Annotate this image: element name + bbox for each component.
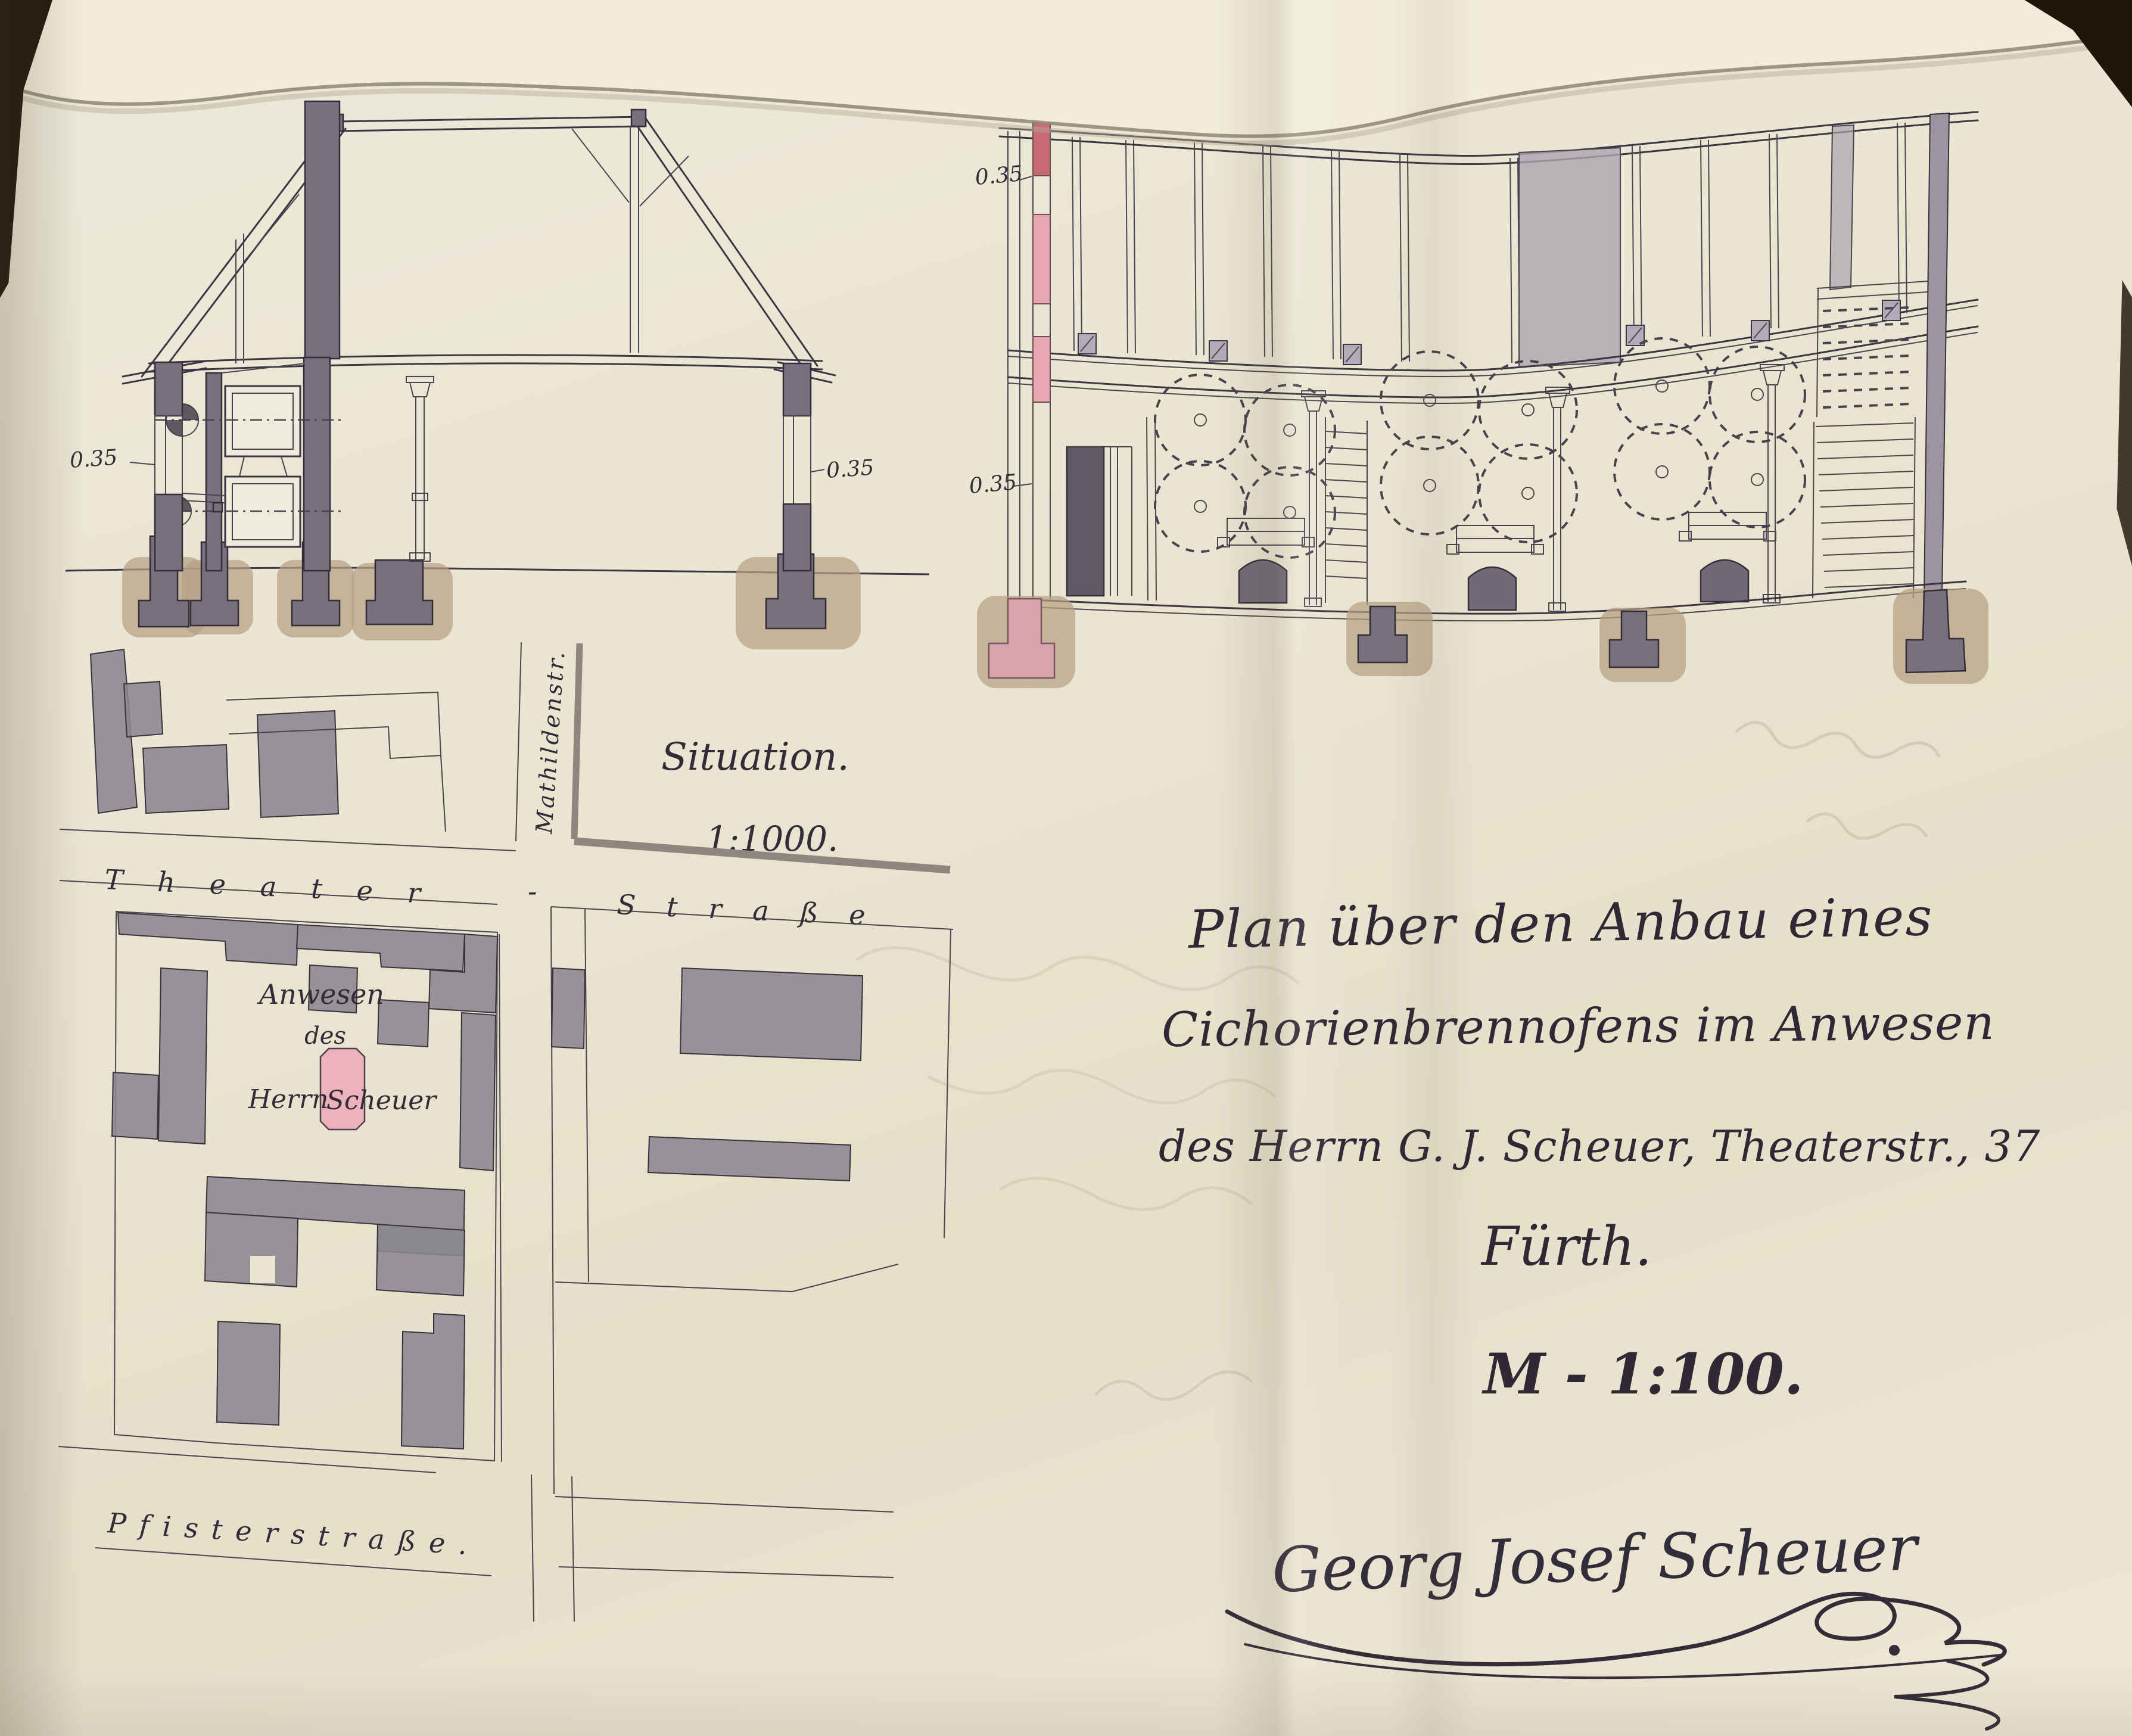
roasting-oven-section — [155, 357, 346, 571]
property-label-3: Herrn — [248, 1084, 329, 1115]
street-pfister-label: Pfisterstraße. — [106, 1507, 481, 1561]
photo-corner-dark-tl — [0, 0, 66, 298]
door-opening — [1067, 447, 1132, 596]
fire-arches — [1239, 560, 1748, 610]
page-shading-bottom — [0, 1665, 2132, 1736]
dim-0-35-right: 0.35 — [826, 455, 875, 483]
site-plan-title: Situation. — [661, 735, 849, 779]
timber-studs — [1072, 123, 1907, 363]
eave-lines — [1000, 112, 1978, 164]
new-wall-pink-segment — [1033, 337, 1050, 402]
street-theater-sep: - — [528, 875, 537, 907]
street-theater-label-1: Theater — [104, 863, 456, 911]
street-mathilden: Mathildenstr. — [516, 642, 580, 841]
dim-0-35-upper: 0.35 — [974, 161, 1023, 190]
chimney-band-narrow — [1830, 125, 1854, 290]
lane-lines — [499, 907, 554, 1494]
plan-scale: M - 1:100. — [1483, 1342, 1804, 1407]
property-label-1: Anwesen — [257, 978, 384, 1010]
plan-title-line-1: Plan über den Anbau eines — [1188, 886, 1934, 960]
chimney — [305, 101, 340, 359]
photo-edge-dark-right — [2114, 280, 2132, 566]
bleed-through-marks — [1704, 709, 1978, 911]
drum-group-b — [1381, 351, 1577, 542]
drum-group-c — [1614, 338, 1805, 527]
scanned-plan-page: 0.35 0.35 — [0, 0, 2132, 1736]
dim-0-35-lower: 0.35 — [968, 470, 1017, 499]
property-label-2: des — [304, 1022, 346, 1050]
left-wall-new-masonry: 0.35 0.35 — [968, 112, 1050, 599]
right-wall — [783, 363, 811, 571]
bleed-through-marks — [1078, 1346, 1269, 1430]
longitudinal-section-drawing: 0.35 0.35 — [953, 36, 2037, 703]
right-end-wall — [1924, 113, 1949, 598]
staircase — [1813, 417, 1915, 598]
plan-title-line-2: Cichorienbrennofens im Anwesen — [1162, 995, 1996, 1057]
floor-beam — [1008, 300, 1978, 403]
plan-title-city: Fürth. — [1471, 1215, 1662, 1278]
new-wall-pink-segment — [1033, 214, 1050, 304]
site-plan: Situation. 1:1000. Mathildenstr. Theater… — [48, 631, 971, 1644]
buildings-north — [91, 649, 446, 832]
dimension-labels: 0.35 0.35 — [69, 445, 875, 483]
property-owner-label: Scheuer — [326, 1085, 438, 1116]
left-wall — [155, 362, 182, 571]
dim-0-35-left: 0.35 — [69, 445, 119, 472]
drum-group-a — [1155, 375, 1335, 558]
block-east — [552, 909, 951, 1292]
cross-section-drawing: 0.35 0.35 — [66, 83, 929, 679]
street-pfister: Pfisterstraße. — [58, 1446, 894, 1622]
cast-iron-column — [406, 377, 434, 561]
new-wall-red-segment — [1033, 112, 1050, 176]
street-theater-label-2: Straße — [617, 888, 897, 932]
oven-pedestals — [1218, 512, 1776, 554]
block-scheuer: Anwesen des Herrn Scheuer — [112, 911, 497, 1461]
oven-chamber-upper — [225, 386, 300, 456]
signature-name: Georg Josef Scheuer — [1271, 1511, 1918, 1607]
street-mathilden-label: Mathildenstr. — [531, 649, 570, 835]
plan-title-line-3: des Herrn G. J. Scheuer, Theaterstr., 37 — [1159, 1121, 2040, 1171]
chimney-band — [1519, 148, 1620, 367]
roof-truss — [123, 110, 835, 384]
